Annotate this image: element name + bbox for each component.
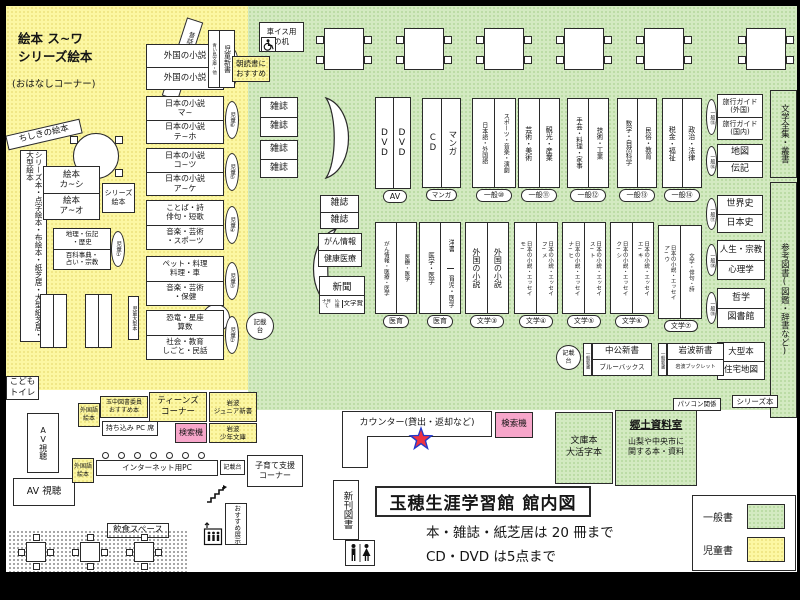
morning-reading-recommend: 朝読書におすすめ <box>232 56 270 82</box>
jp-novels-shelf-7-tag: 文学⑦ <box>664 320 698 332</box>
study-table-3 <box>484 28 524 70</box>
jp-novels-shelf-7: 日本の小説・エッセイア~ウ文学・俳句・詩 <box>658 225 702 319</box>
jp-novels-shelf-4-tag: 文学④ <box>519 315 553 328</box>
jp-novels-shelf-5-tag: 文学⑤ <box>567 315 601 328</box>
jp-novels-shelf-6-tag: 文学⑥ <box>615 315 649 328</box>
floor-map: 玉穂生涯学習館 館内図 本・雑誌・紙芝居は 20 冊まで CD・DVD は5点ま… <box>6 6 797 572</box>
literature-anthology-shelf: 文学全集・叢書 <box>770 90 797 178</box>
pets-cooking-kids-shelf: ペット・料理料理・車音楽・芸術・保健 <box>146 256 224 306</box>
pc-chairs-1 <box>118 452 125 459</box>
legend-children-swatch <box>747 537 785 562</box>
local-materials-room: 郷土資料室山梨や中央市に関する本・資料 <box>615 410 697 486</box>
internet-pc-desk: インターネット用PC <box>96 460 218 476</box>
newspaper-shelf: 新聞子育て応援文学賞 <box>319 276 365 314</box>
foreign-novels-shelf: 外国の小説外国の小説 <box>465 222 509 314</box>
loan-limit-note-av: CD・DVD は5点まで <box>426 545 556 565</box>
elevator-icon <box>203 522 223 546</box>
geography-history-shelf-tag: 児童① <box>111 231 125 267</box>
dinosaur-science-kids-shelf: 恐竜・星座算数社会・教育しごと・民話 <box>146 310 224 360</box>
dinosaur-science-kids-shelf-tag: 児童② <box>225 316 239 354</box>
search-machine-2: 検索機 <box>175 423 207 443</box>
philosophy-shelf-tag: 一般⑲ <box>706 292 717 324</box>
jp-novels-shelf-4: 日本の小説・エッセイモ~日本の小説・エッセイフ~メ <box>514 222 558 314</box>
story-corner-note: (おはなしコーナー) <box>12 78 152 92</box>
general-shelf-11-tag: 一般⑪ <box>521 189 557 202</box>
map-title-text: 玉穂生涯学習館 館内図 <box>390 489 577 514</box>
pc-chairs-0 <box>102 452 109 459</box>
kids-shelf-strips-2-b <box>98 294 112 348</box>
history-shelf: 世界史日本史 <box>717 195 763 233</box>
study-table-6 <box>746 28 786 70</box>
life-religion-shelf: 人生・宗教心理学 <box>717 240 765 280</box>
general-shelf-11: 芸術・美術観光・産業 <box>518 98 560 188</box>
cd-manga-shelf-tag: マンガ <box>426 189 457 201</box>
foreign-novels-shelf-tag: 文学③ <box>470 315 504 328</box>
general-shelf-14: 税金・福祉政治・法律 <box>662 98 702 188</box>
study-table-4 <box>564 28 604 70</box>
pc-chairs-5 <box>182 452 189 459</box>
crescent-seat-1 <box>320 94 358 182</box>
jp-novels-kids-shelf-1-tag: 児童⑥ <box>225 101 239 139</box>
life-religion-shelf-tag: 一般⑱ <box>706 244 717 276</box>
series-books-tag: シリーズ本 <box>732 395 778 408</box>
bluebird-bunko-shelf: 青い鳥文庫・他児童新書 <box>208 30 235 88</box>
jp-novels-shelf-5: 日本の小説・エッセイナ~ヒ日本の小説・エッセイス~ト <box>562 222 606 314</box>
philosophy-shelf: 哲学図書館 <box>717 288 765 328</box>
chuko-shinsho-shelf: 中公新書ブルーバックス <box>592 343 652 376</box>
jp-novels-shelf-6: 日本の小説・エッセイク~シ日本の小説・エッセイエ~キ <box>610 222 654 314</box>
dvd-shelf: DVDDVD <box>375 97 411 189</box>
kids-shelf-strips-2 <box>85 294 115 348</box>
medical-shelf-2: 医学・医学洋書育児・医学 <box>419 222 461 314</box>
stairs-icon <box>205 484 229 504</box>
reference-books-shelf: 参考図書(図鑑・辞書など) <box>770 182 797 418</box>
picture-books-heading: 絵本 ス~ワシリーズ絵本 <box>18 30 150 66</box>
dining-area-table-2 <box>80 542 100 562</box>
maps-biography-shelf: 地図伝記 <box>717 144 763 178</box>
iwanami-junior-shinsho: 岩波ジュニア新書 <box>209 392 257 422</box>
you-are-here-star <box>408 426 434 452</box>
cancer-info-shelf: がん情報健康医療 <box>318 233 362 267</box>
magazine-shelf-3: 雑誌雑誌 <box>320 195 359 229</box>
av-viewing-table: AV視聴 <box>27 413 59 473</box>
recommend-display: おすすめ展示 <box>225 503 247 545</box>
bunko-large-print-shelf: 文庫本大活字本 <box>555 412 613 484</box>
series-ehon-tag: シリーズ絵本 <box>102 183 135 213</box>
general-shelf-12-tag: 一般⑫ <box>570 189 606 202</box>
service-counter-stub <box>342 436 368 468</box>
legend-children-label: 児童書 <box>703 542 733 557</box>
general-shelf-13-tag: 一般⑬ <box>619 189 655 202</box>
legend: 一般書 児童書 <box>692 495 796 571</box>
words-poetry-kids-shelf: ことば・詩俳句・短歌音楽・芸術・スポーツ <box>146 200 224 250</box>
foreign-ehon-shelf-1: 外国語絵本 <box>78 403 100 427</box>
legend-row-general: 一般書 <box>703 504 785 529</box>
kids-shelf-strips-2-a <box>85 294 99 348</box>
legend-row-children: 児童書 <box>703 537 785 562</box>
kids-shelf-strips-1-b <box>53 294 67 348</box>
dining-area-table-1 <box>26 542 46 562</box>
magazine-shelf-2: 雑誌雑誌 <box>260 140 298 178</box>
jp-novels-kids-shelf-2-tag: 児童⑤ <box>225 153 239 191</box>
words-poetry-kids-shelf-tag: 児童④ <box>225 206 239 244</box>
teens-corner: ティーンズコーナー <box>149 392 207 422</box>
pc-chairs-3 <box>150 452 157 459</box>
travel-guide-shelf-tag: 一般⑮ <box>706 99 717 135</box>
childcare-support-corner: 子育て支援コーナー <box>247 455 303 487</box>
search-machine-1: 検索機 <box>495 412 533 438</box>
writing-stand-3: 記載台 <box>556 345 581 370</box>
pc-chairs-2 <box>134 452 141 459</box>
new-books-shelf: 新刊図書 <box>333 480 359 540</box>
kids-shelf-strips-1-a <box>40 294 54 348</box>
wheelchair-icon <box>261 37 276 52</box>
dining-area <box>8 530 188 572</box>
medical-shelf-1-tag: 医育 <box>383 315 409 328</box>
dining-area-table-3 <box>134 542 154 562</box>
maps-biography-shelf-tag: 一般⑯ <box>706 146 717 176</box>
pets-cooking-kids-shelf-tag: 児童③ <box>225 262 239 300</box>
study-table-2 <box>404 28 444 70</box>
legend-general-swatch <box>747 504 785 529</box>
kids-toilet: こどもトイレ <box>6 376 39 400</box>
medical-shelf-2-tag: 医育 <box>427 315 453 328</box>
pc-chairs-6 <box>198 452 205 459</box>
cd-manga-shelf: CDマンガ <box>422 98 461 188</box>
dvd-shelf-tag: AV <box>383 190 407 203</box>
loan-limit-note-books: 本・雑誌・紙芝居は 20 冊まで <box>426 521 614 541</box>
ehon-shelf: 絵本カ~シ絵本ア~オ <box>43 166 100 220</box>
committee-recommend-shelf: 玉中図書委員おすすめ本 <box>100 396 148 418</box>
kids-large-books-tag: 児童大型本 <box>128 296 139 340</box>
shinsho-tag-1: 一般新書 <box>583 343 592 376</box>
jp-novels-kids-shelf-1: 日本の小説マ~日本の小説テ~ホ <box>146 96 224 144</box>
av-viewing-seat: AV 視聴 <box>13 478 75 506</box>
byo-pc-seat: 持ち込み PC 席 <box>102 421 158 436</box>
magazine-shelf-1: 雑誌雑誌 <box>260 97 298 137</box>
kids-shelf-strips-1 <box>40 294 70 348</box>
study-table-5 <box>644 28 684 70</box>
large-books-shelf: 大型本住宅地図 <box>717 342 765 380</box>
iwanami-youth-bunko: 岩波少年文庫 <box>209 423 257 443</box>
general-shelf-10: 日本語・外国語スポーツ・音楽・演劇 <box>472 98 516 188</box>
toilet-icon <box>345 540 375 566</box>
history-shelf-tag: 一般⑰ <box>706 198 717 230</box>
writing-stand-2: 記載台 <box>246 312 274 340</box>
jp-novels-kids-shelf-2: 日本の小説コ~ツ日本の小説ア~ケ <box>146 148 224 196</box>
legend-general-label: 一般書 <box>703 509 733 524</box>
foreign-ehon-shelf-2: 外国語絵本 <box>72 458 94 483</box>
medical-shelf-1: がん情報・医療・医学医療・医学 <box>375 222 417 314</box>
map-title: 玉穂生涯学習館 館内図 <box>375 486 591 517</box>
study-table-1 <box>324 28 364 70</box>
shinsho-tag-2: 一般新書 <box>658 343 667 376</box>
general-shelf-13: 数学・自然科学民俗・教育 <box>617 98 657 188</box>
iwanami-shinsho-shelf: 岩波新書岩波ブックレット <box>667 343 724 376</box>
writing-desk-tag: 記載台 <box>220 460 245 475</box>
general-shelf-12: 手芸・料理・家事技術・工業 <box>567 98 609 188</box>
pc-chairs-4 <box>166 452 173 459</box>
travel-guide-shelf: 旅行ガイド(外国)旅行ガイド(国内) <box>717 94 763 140</box>
geography-history-shelf: 地理・伝記・歴史百科事典・占い・宗教 <box>53 228 111 270</box>
general-shelf-14-tag: 一般⑭ <box>664 189 700 202</box>
general-shelf-10-tag: 一般⑩ <box>476 189 512 202</box>
